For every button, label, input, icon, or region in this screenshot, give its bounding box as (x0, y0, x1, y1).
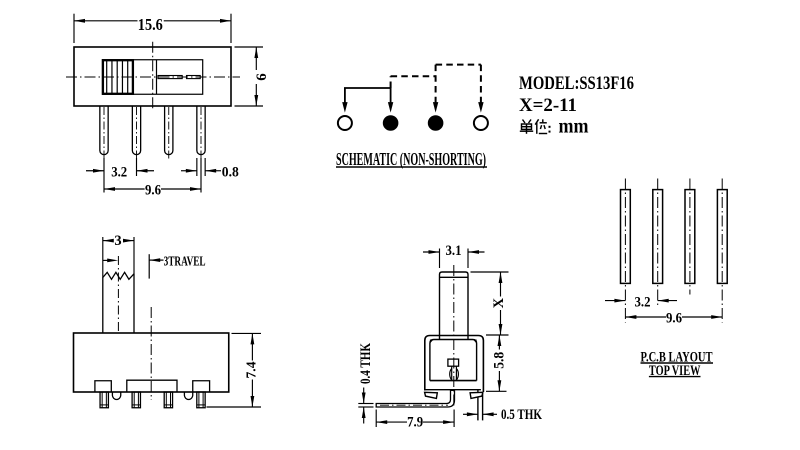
svg-text:MODEL:SS13F16: MODEL:SS13F16 (519, 73, 634, 94)
svg-text:3.2: 3.2 (635, 295, 651, 311)
svg-text:9.6: 9.6 (145, 182, 161, 198)
svg-text:0.4 THK: 0.4 THK (358, 342, 374, 384)
svg-text:X: X (491, 297, 507, 308)
svg-text:0.8: 0.8 (222, 164, 239, 180)
svg-text:3.1: 3.1 (446, 243, 462, 259)
svg-text:0.5 THK: 0.5 THK (501, 407, 543, 423)
svg-text:3: 3 (114, 233, 121, 249)
svg-text:7.9: 7.9 (407, 414, 423, 430)
svg-text:6: 6 (254, 73, 270, 81)
svg-text:5.8: 5.8 (492, 352, 508, 369)
svg-text:3.2: 3.2 (111, 164, 127, 180)
svg-text:15.6: 15.6 (138, 15, 163, 34)
svg-text:3TRAVEL: 3TRAVEL (164, 254, 206, 269)
svg-text:9.6: 9.6 (666, 310, 682, 326)
svg-text:SCHEMATIC (NON-SHORTING): SCHEMATIC (NON-SHORTING) (336, 149, 486, 169)
svg-text:7.4: 7.4 (244, 362, 259, 379)
svg-text:mm: mm (559, 114, 589, 138)
